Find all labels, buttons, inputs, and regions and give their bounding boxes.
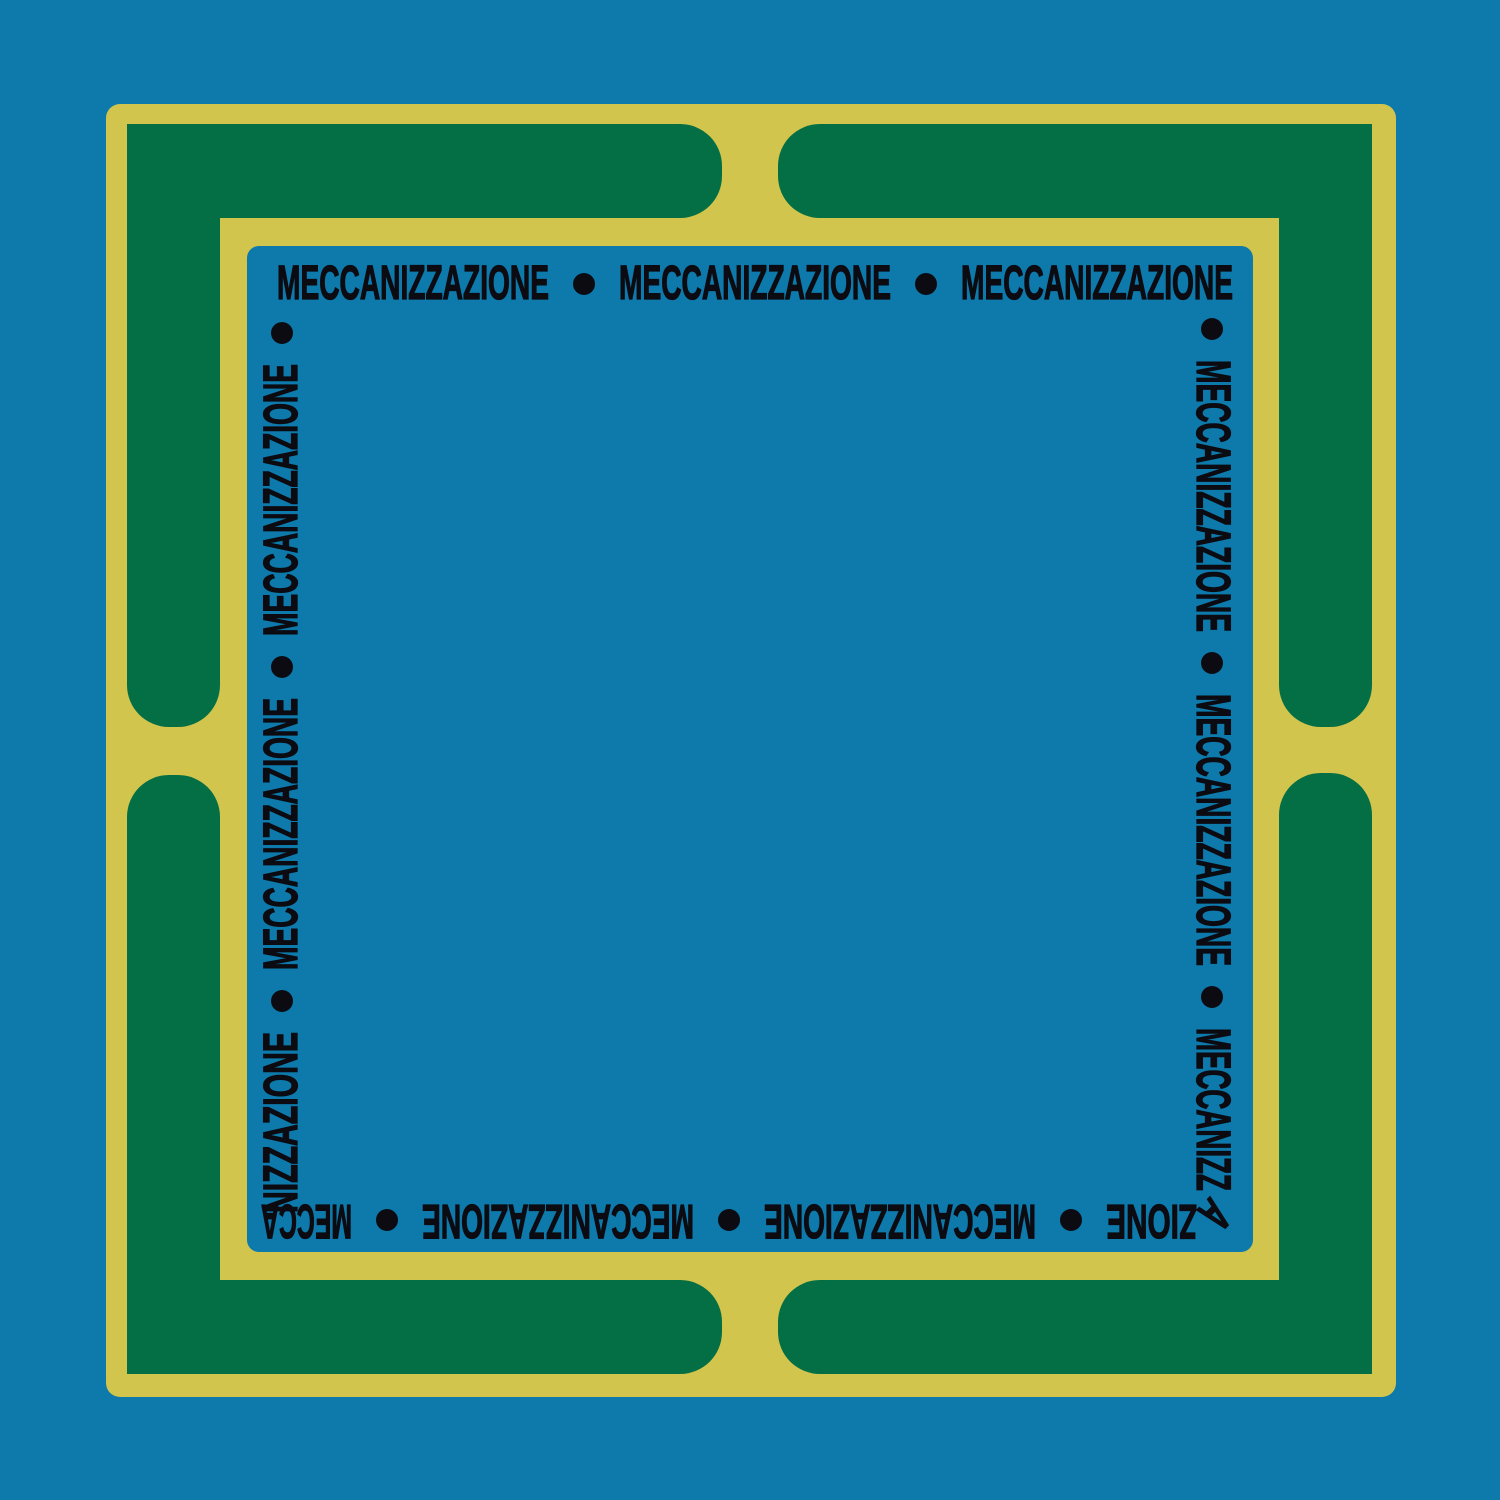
border-word-text: MECCANIZZAZIONE: [961, 264, 1233, 304]
border-word-text: ZIONE: [1106, 1200, 1197, 1240]
green-panel-bottom-right-horizontal: [778, 1280, 1372, 1374]
border-word: MECCANIZZAZIONE: [1192, 694, 1232, 966]
border-word-text: MECCANIZZAZIONE: [277, 264, 549, 304]
border-word-text: MECCANIZZAZIONE: [262, 364, 302, 636]
border-text-right: MECCANIZZAZIONEMECCANIZZAZIONEMECCANIZZ: [1192, 318, 1232, 1191]
bullet-dot: [271, 322, 293, 344]
border-word: MECCANIZZ: [1192, 1028, 1232, 1191]
bullet-dot: [915, 273, 937, 295]
border-word: MECCANIZZAZIONE: [262, 364, 302, 636]
border-text-top: MECCANIZZAZIONEMECCANIZZAZIONEMECCANIZZA…: [277, 264, 1233, 304]
inner-blue-square: [247, 246, 1253, 1252]
border-word-text: MECCANIZZ: [1192, 1028, 1232, 1191]
border-text-left: NIZZAZIONEMECCANIZZAZIONEMECCANIZZAZIONE: [262, 322, 302, 1213]
poster-canvas: MECCANIZZAZIONEMECCANIZZAZIONEMECCANIZZA…: [0, 0, 1500, 1500]
bullet-dot: [376, 1209, 398, 1231]
green-panel-top-right-vertical: [1279, 124, 1372, 727]
border-word: MECCANIZZAZIONE: [961, 264, 1233, 304]
green-panel-bottom-left-horizontal: [127, 1280, 722, 1374]
green-panel-top-left-vertical: [127, 124, 220, 727]
border-word: MECCANIZZAZIONE: [764, 1200, 1036, 1240]
bullet-dot: [573, 273, 595, 295]
bullet-dot: [718, 1209, 740, 1231]
border-text-bottom: ZIONEMECCANIZZAZIONEMECCANIZZAZIONEMECCA: [261, 1200, 1197, 1240]
border-word: MECCANIZZAZIONE: [277, 264, 549, 304]
border-word: MECCANIZZAZIONE: [619, 264, 891, 304]
bullet-dot: [271, 656, 293, 678]
border-word-text: MECCANIZZAZIONE: [262, 698, 302, 970]
border-word-text: MECCANIZZAZIONE: [1192, 360, 1232, 632]
border-word: MECCANIZZAZIONE: [262, 698, 302, 970]
bullet-dot: [1060, 1209, 1082, 1231]
border-word: MECCANIZZAZIONE: [1192, 360, 1232, 632]
border-word-text: MECCANIZZAZIONE: [764, 1200, 1036, 1240]
border-word-text: NIZZAZIONE: [262, 1032, 302, 1213]
border-word-text: MECCANIZZAZIONE: [422, 1200, 694, 1240]
bullet-dot: [1201, 986, 1223, 1008]
border-word: MECCANIZZAZIONE: [422, 1200, 694, 1240]
bullet-dot: [271, 990, 293, 1012]
border-word-text: MECCANIZZAZIONE: [619, 264, 891, 304]
bullet-dot: [1201, 652, 1223, 674]
border-word-text: MECCANIZZAZIONE: [1192, 694, 1232, 966]
bullet-dot: [1201, 318, 1223, 340]
border-word: NIZZAZIONE: [262, 1032, 302, 1213]
border-word: ZIONE: [1106, 1200, 1197, 1240]
